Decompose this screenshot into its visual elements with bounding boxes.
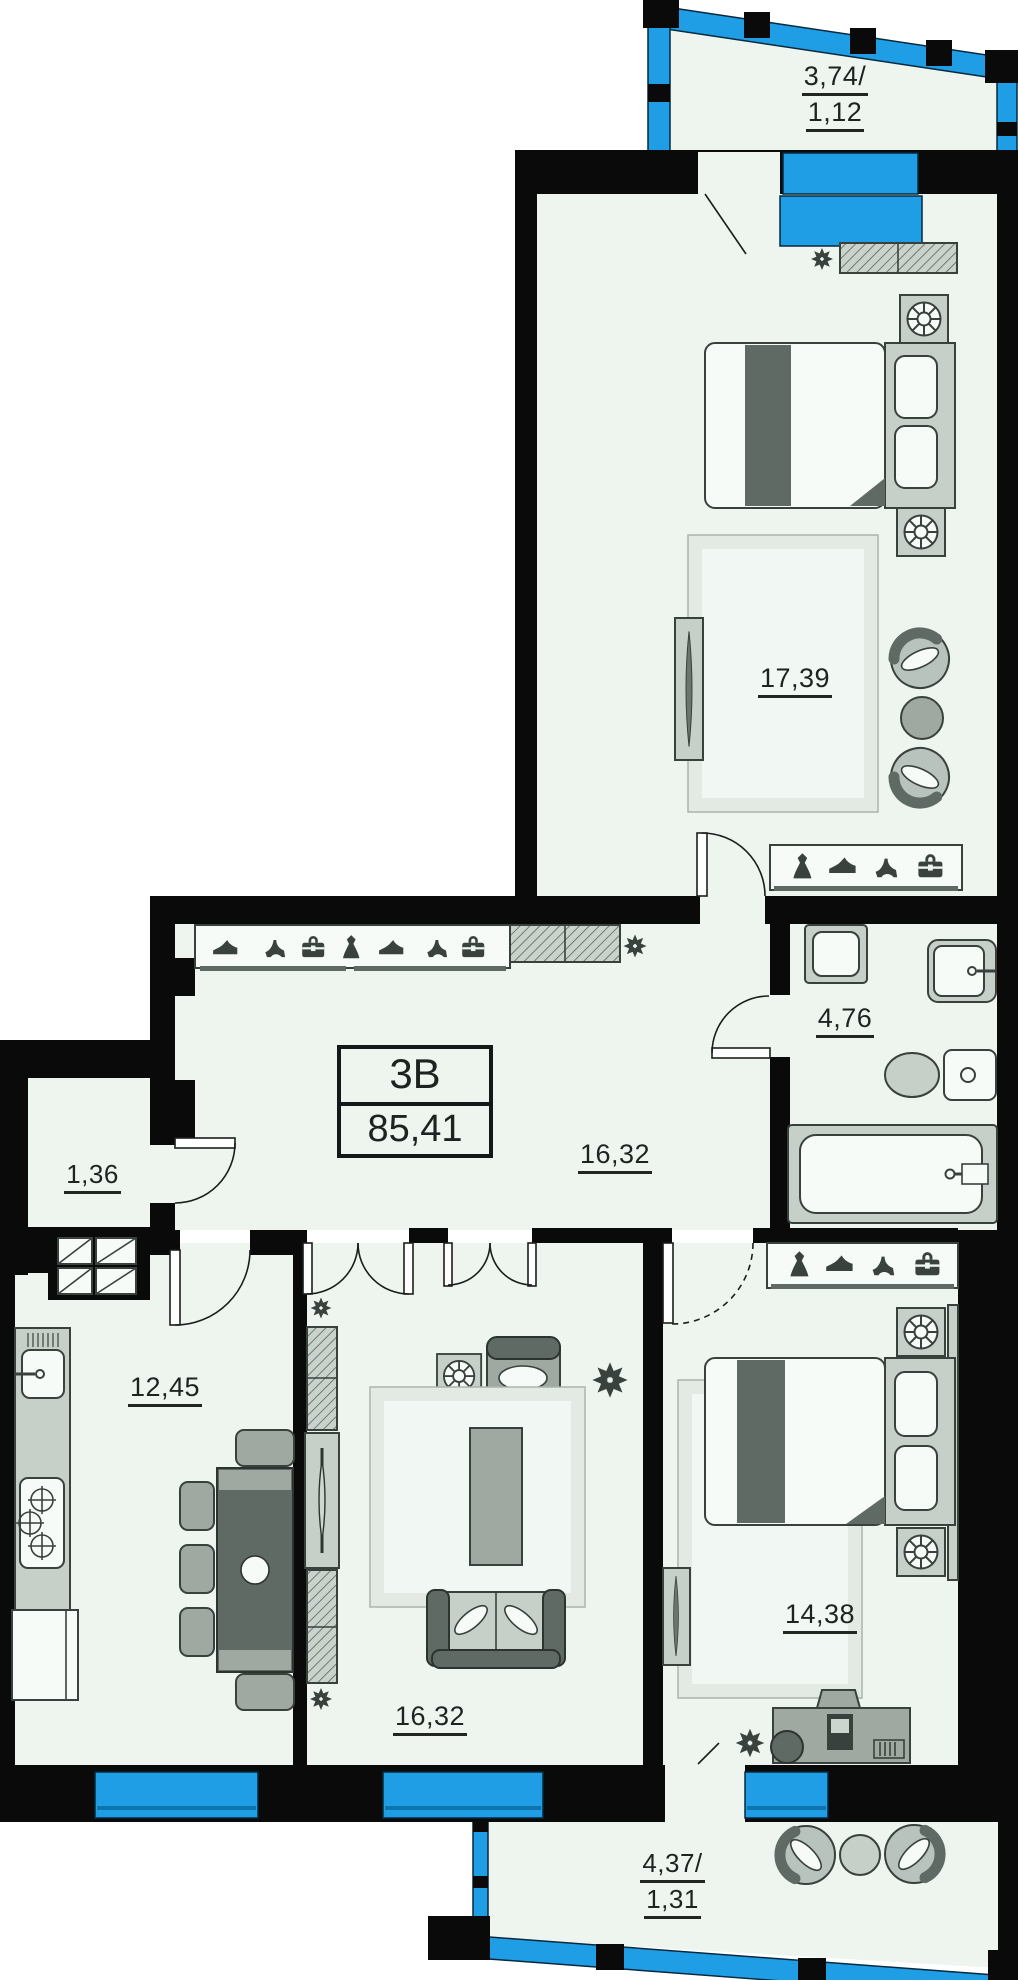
kitchen-sink <box>15 1350 64 1398</box>
fan-icon <box>897 1308 945 1356</box>
window-bedroom-bottom <box>745 1772 828 1818</box>
balcony-chair <box>885 1825 943 1883</box>
bed <box>705 1358 955 1525</box>
desk-chair <box>771 1731 803 1763</box>
fan-icon <box>900 295 948 343</box>
fan-icon <box>897 508 945 556</box>
room-label-bedroom-bottom: 14,38 <box>770 1596 870 1632</box>
window-bedroom-top <box>783 153 918 194</box>
dresser-mirror <box>663 1568 690 1665</box>
room-label-balcony-bottom: 4,37/ 1,31 <box>600 1845 745 1917</box>
balcony-chair <box>777 1826 835 1884</box>
apartment-info-box: 3B 85,41 <box>337 1045 493 1158</box>
coffee-table <box>470 1428 522 1565</box>
dresser-mirror <box>675 618 703 760</box>
room-label-hallway: 16,32 <box>565 1136 665 1172</box>
window-living-room <box>383 1772 543 1818</box>
stove <box>16 1478 64 1568</box>
wardrobe-shelf <box>770 845 962 891</box>
room-label-bathroom: 4,76 <box>795 1000 895 1036</box>
tv-unit <box>305 1433 339 1568</box>
bed <box>705 343 955 508</box>
balcony-table <box>840 1835 880 1875</box>
room-label-living-room: 16,32 <box>380 1698 480 1734</box>
fridge <box>12 1610 78 1700</box>
wardrobe-shelf <box>767 1243 958 1289</box>
sink-drainer <box>28 1333 58 1347</box>
sink <box>928 940 996 1002</box>
apartment-type: 3B <box>341 1049 489 1106</box>
shoe-shelf <box>195 925 510 971</box>
room-label-kitchen: 12,45 <box>115 1369 215 1405</box>
floor-plan-drawing <box>0 0 1018 1980</box>
room-label-balcony-top: 3,74/ 1,12 <box>760 58 910 130</box>
washing-machine <box>805 925 867 983</box>
apartment-total-area: 85,41 <box>341 1106 489 1154</box>
bathtub <box>788 1125 997 1223</box>
window-kitchen <box>95 1772 258 1818</box>
room-label-bedroom-top: 17,39 <box>745 660 845 696</box>
fan-icon <box>897 1528 945 1576</box>
side-table <box>901 697 943 739</box>
floor-plan: 3,74/ 1,12 17,39 4,76 16,32 1,36 12,45 1… <box>0 0 1018 1980</box>
sofa <box>427 1590 565 1668</box>
room-label-storage: 1,36 <box>40 1156 145 1192</box>
